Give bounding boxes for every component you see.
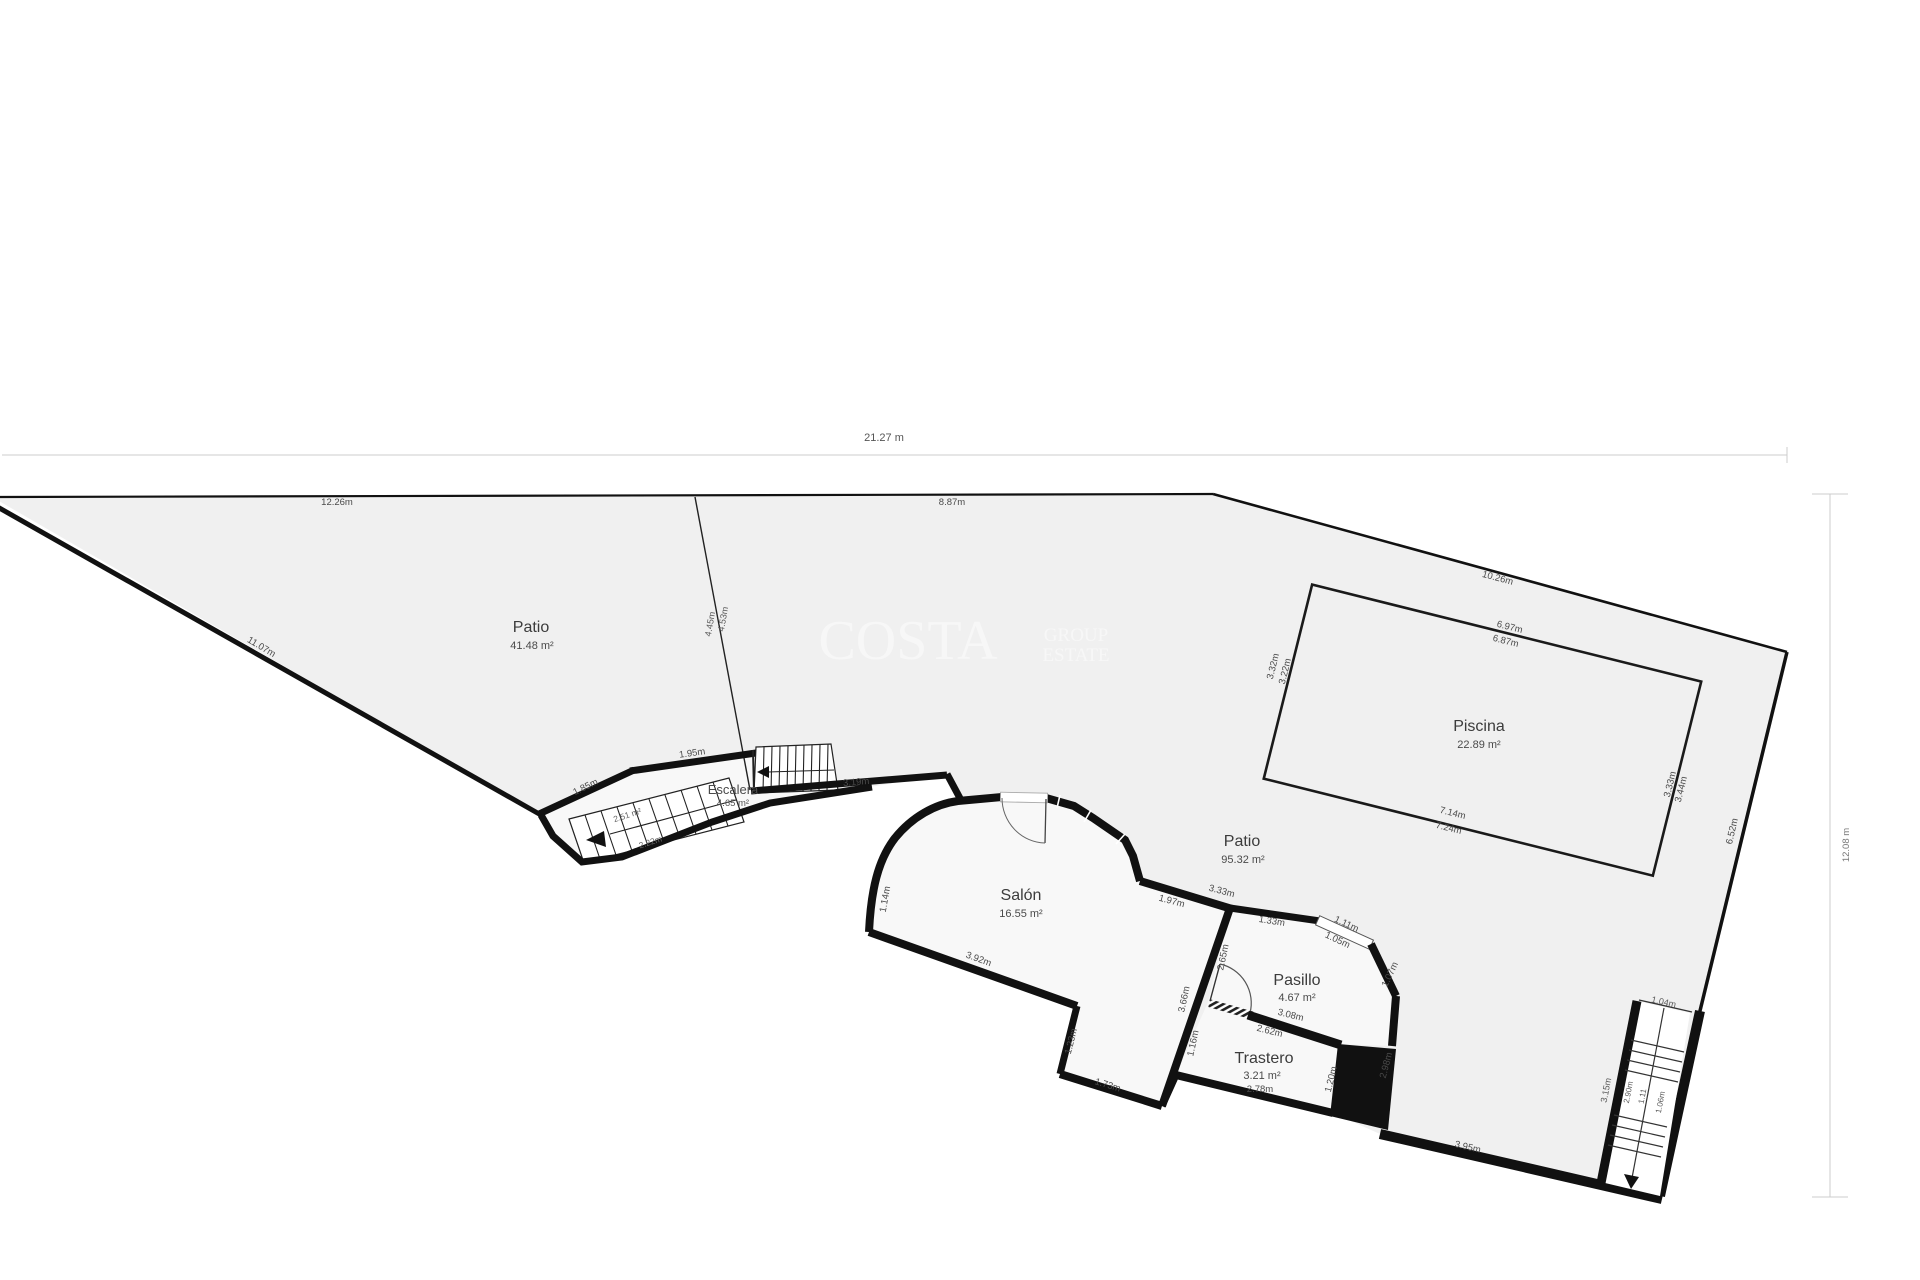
svg-text:12.26m: 12.26m bbox=[321, 497, 353, 508]
svg-text:12.08 m: 12.08 m bbox=[1841, 828, 1852, 862]
svg-text:2.78m: 2.78m bbox=[1247, 1084, 1273, 1095]
svg-text:4.67 m²: 4.67 m² bbox=[1278, 992, 1316, 1004]
svg-text:ESTATE: ESTATE bbox=[1042, 645, 1109, 666]
svg-text:3.21 m²: 3.21 m² bbox=[1243, 1070, 1281, 1082]
svg-text:Escalera: Escalera bbox=[708, 782, 759, 797]
svg-text:16.55 m²: 16.55 m² bbox=[999, 908, 1043, 920]
svg-text:Salón: Salón bbox=[1001, 887, 1042, 904]
svg-text:22.89 m²: 22.89 m² bbox=[1457, 739, 1501, 751]
svg-text:Pasillo: Pasillo bbox=[1273, 972, 1320, 989]
svg-text:41.48 m²: 41.48 m² bbox=[510, 640, 554, 652]
svg-text:Patio: Patio bbox=[1224, 833, 1261, 850]
svg-text:8.87m: 8.87m bbox=[939, 497, 965, 508]
svg-text:4.65 m²: 4.65 m² bbox=[717, 798, 749, 809]
svg-text:Piscina: Piscina bbox=[1453, 718, 1505, 735]
svg-text:Patio: Patio bbox=[513, 619, 550, 636]
svg-text:95.32 m²: 95.32 m² bbox=[1221, 854, 1265, 866]
svg-text:21.27 m: 21.27 m bbox=[864, 432, 904, 444]
svg-text:3.19m: 3.19m bbox=[842, 776, 869, 789]
svg-text:COSTA: COSTA bbox=[818, 610, 998, 672]
svg-text:Trastero: Trastero bbox=[1235, 1050, 1294, 1067]
svg-text:GROUP: GROUP bbox=[1044, 625, 1108, 646]
